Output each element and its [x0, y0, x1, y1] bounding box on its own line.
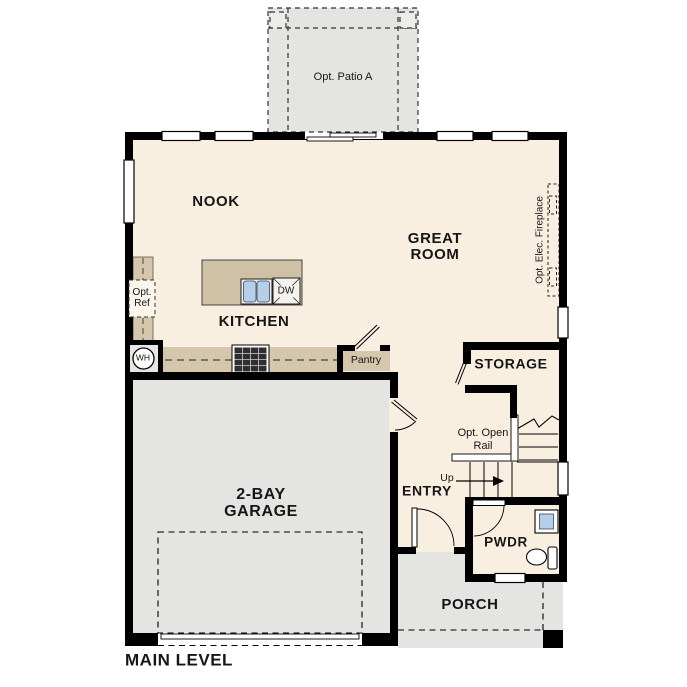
front-door-leaf	[412, 508, 417, 547]
wall-storage-bottom	[465, 385, 517, 393]
wall-storage-top	[463, 342, 559, 350]
wall-entry-bottom-left	[398, 547, 416, 554]
window-nook-left	[124, 160, 134, 223]
pwdr-sink-basin	[540, 514, 554, 529]
wall-pantry-top-right	[380, 345, 390, 351]
sink-basin-left	[244, 281, 257, 302]
floor-plan: Opt. Patio A NOOK GREAT ROOM Opt. Elec. …	[0, 0, 687, 687]
water-heater-circle	[133, 348, 154, 369]
open-rail-vertical	[511, 415, 518, 461]
wall-top-right	[383, 132, 567, 140]
wall-stair-vertical	[510, 388, 517, 418]
patio-post-left	[270, 12, 286, 28]
wall-garage-bottom-right	[362, 633, 398, 646]
window-pwdr	[495, 574, 525, 583]
pwdr-door-leaf	[473, 500, 505, 506]
garage-floor	[133, 380, 390, 633]
slider-panel-moving	[330, 133, 376, 137]
wall-right	[559, 140, 567, 582]
window-top-1	[162, 132, 200, 141]
open-rail-horizontal	[452, 454, 513, 461]
garage-door-panel	[161, 634, 359, 639]
floor-plan-drawing	[0, 0, 687, 687]
patio-floor	[268, 8, 418, 132]
wall-pwdr-left	[465, 497, 473, 582]
dishwasher-label-bg	[276, 286, 298, 298]
patio-post-right	[400, 12, 416, 28]
sliding-door	[305, 133, 383, 141]
wall-entry-bottom-right	[454, 547, 473, 554]
toilet-tank	[548, 547, 557, 569]
window-greatroom-right	[558, 307, 568, 338]
window-top-3	[437, 132, 473, 141]
slider-panel-fixed	[307, 137, 353, 141]
pantry-shelf	[343, 351, 390, 371]
optional-refrigerator-outline	[129, 280, 155, 317]
wall-pantry-top-left	[337, 345, 355, 351]
wall-garage-top	[125, 372, 398, 380]
wall-garage-bottom-left	[125, 633, 158, 646]
window-top-2	[215, 132, 253, 141]
sink-basin-right	[257, 281, 270, 302]
window-top-4	[492, 132, 528, 141]
window-stair-right	[558, 462, 568, 495]
toilet-bowl	[527, 549, 547, 565]
porch-column	[543, 630, 563, 648]
floor-areas	[133, 8, 563, 648]
